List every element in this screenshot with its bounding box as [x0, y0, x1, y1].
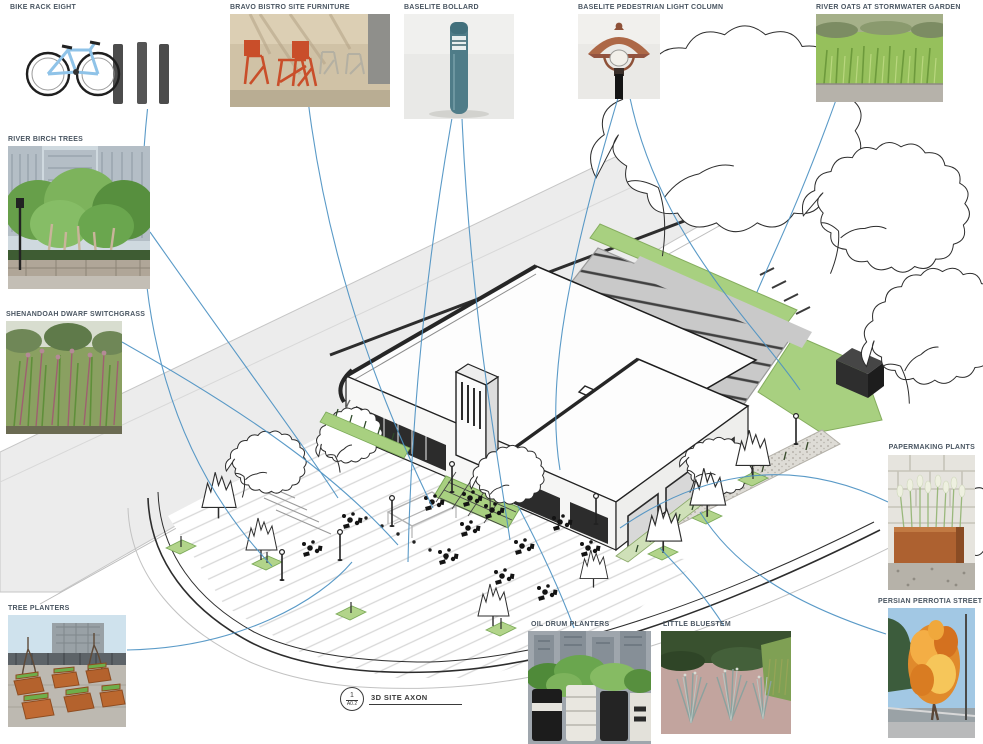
parrotia-trees-photo — [888, 608, 975, 738]
callout-oil-drum-planters: OIL DRUM PLANTERS — [531, 621, 651, 744]
drawing-caption: 3D SITE AXON — [369, 693, 462, 705]
bistro-furniture-photo — [230, 14, 390, 107]
detail-number: 1 — [346, 692, 358, 701]
river-oats-photo — [816, 14, 943, 102]
callout-bollard: BASELITE BOLLARD — [404, 4, 514, 119]
callout-label: PAPERMAKING PLANTS — [889, 444, 975, 451]
callout-switchgrass: SHENANDOAH DWARF SWITCHGRASS — [6, 311, 145, 434]
callout-label: RIVER OATS AT STORMWATER GARDEN — [816, 4, 961, 11]
callout-papermaking-plants: PAPERMAKING PLANTS — [888, 444, 975, 590]
callout-bistro-furniture: BRAVO BISTRO SITE FURNITURE — [230, 4, 390, 107]
oil-drum-planters-photo — [528, 631, 651, 744]
river-birch-photo — [8, 146, 150, 289]
callout-label: BRAVO BISTRO SITE FURNITURE — [230, 4, 390, 11]
callout-river-oats: RIVER OATS AT STORMWATER GARDEN — [816, 4, 961, 102]
callout-label: RIVER BIRCH TREES — [8, 136, 150, 143]
callout-bike-rack: BIKE RACK EIGHT — [10, 4, 170, 109]
callout-label: BASELITE PEDESTRIAN LIGHT COLUMN — [578, 4, 723, 11]
callout-river-birch: RIVER BIRCH TREES — [8, 136, 150, 289]
callout-label: SHENANDOAH DWARF SWITCHGRASS — [6, 311, 145, 318]
callout-label: BASELITE BOLLARD — [404, 4, 514, 11]
callout-parrotia-trees: PERSIAN PERROTIA STREET TREES — [878, 598, 983, 738]
switchgrass-photo — [6, 321, 122, 434]
callout-label: TREE PLANTERS — [8, 605, 126, 612]
drawing-title-block: 1 A0.2 3D SITE AXON — [340, 687, 462, 711]
callout-light-column: BASELITE PEDESTRIAN LIGHT COLUMN — [578, 4, 723, 99]
tree-planters-photo — [8, 615, 126, 727]
callout-label: BIKE RACK EIGHT — [10, 4, 170, 11]
bollard-photo — [404, 14, 514, 119]
callout-label: OIL DRUM PLANTERS — [531, 621, 651, 628]
bike-rack-photo — [10, 14, 170, 109]
light-column-photo — [578, 14, 660, 99]
callout-tree-planters: TREE PLANTERS — [8, 605, 126, 727]
presentation-board: BIKE RACK EIGHT BRAVO BISTRO SITE FURNIT… — [0, 0, 983, 744]
callout-label: PERSIAN PERROTIA STREET TREES — [878, 598, 983, 605]
little-bluestem-photo — [661, 631, 791, 734]
callout-label: LITTLE BLUESTEM — [663, 621, 791, 628]
callout-little-bluestem: LITTLE BLUESTEM — [663, 621, 791, 734]
detail-marker: 1 A0.2 — [340, 687, 364, 711]
papermaking-plants-photo — [888, 455, 975, 590]
sheet-number: A0.2 — [347, 701, 357, 707]
